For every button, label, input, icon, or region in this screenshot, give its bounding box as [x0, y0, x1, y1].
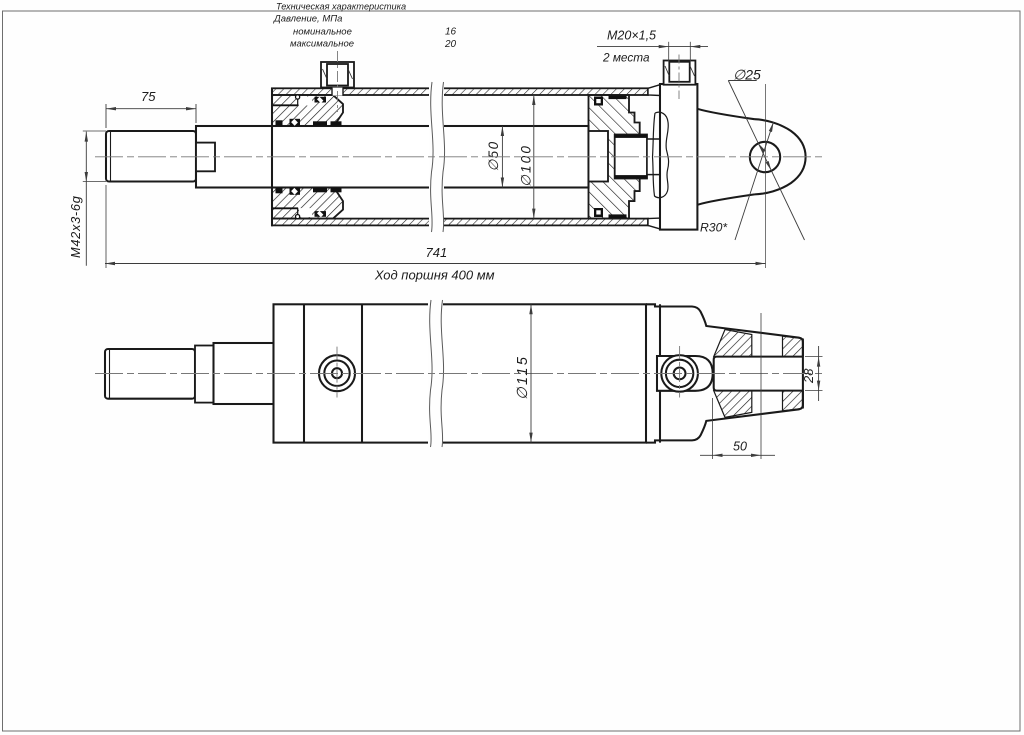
svg-text:20: 20: [444, 39, 457, 50]
svg-text:741: 741: [426, 245, 448, 260]
svg-text:∅115: ∅115: [515, 355, 531, 400]
svg-text:Давление, МПа: Давление, МПа: [273, 14, 342, 25]
svg-text:16: 16: [445, 27, 457, 38]
svg-text:Ход поршня 400 мм: Ход поршня 400 мм: [374, 268, 495, 283]
svg-text:номинальное: номинальное: [293, 27, 352, 38]
svg-text:R30*: R30*: [700, 221, 728, 235]
svg-text:М42х3-6g: М42х3-6g: [68, 195, 83, 258]
svg-text:50: 50: [733, 440, 747, 454]
svg-text:∅25: ∅25: [733, 67, 761, 83]
svg-text:2 места: 2 места: [602, 51, 650, 65]
svg-text:Техническая характеристика: Техническая характеристика: [276, 2, 406, 12]
svg-text:75: 75: [141, 89, 156, 104]
svg-text:∅50: ∅50: [486, 141, 501, 172]
svg-text:28: 28: [801, 368, 816, 384]
svg-text:М20×1,5: М20×1,5: [607, 29, 656, 43]
svg-text:максимальное: максимальное: [290, 39, 354, 50]
svg-text:∅100: ∅100: [519, 144, 534, 187]
